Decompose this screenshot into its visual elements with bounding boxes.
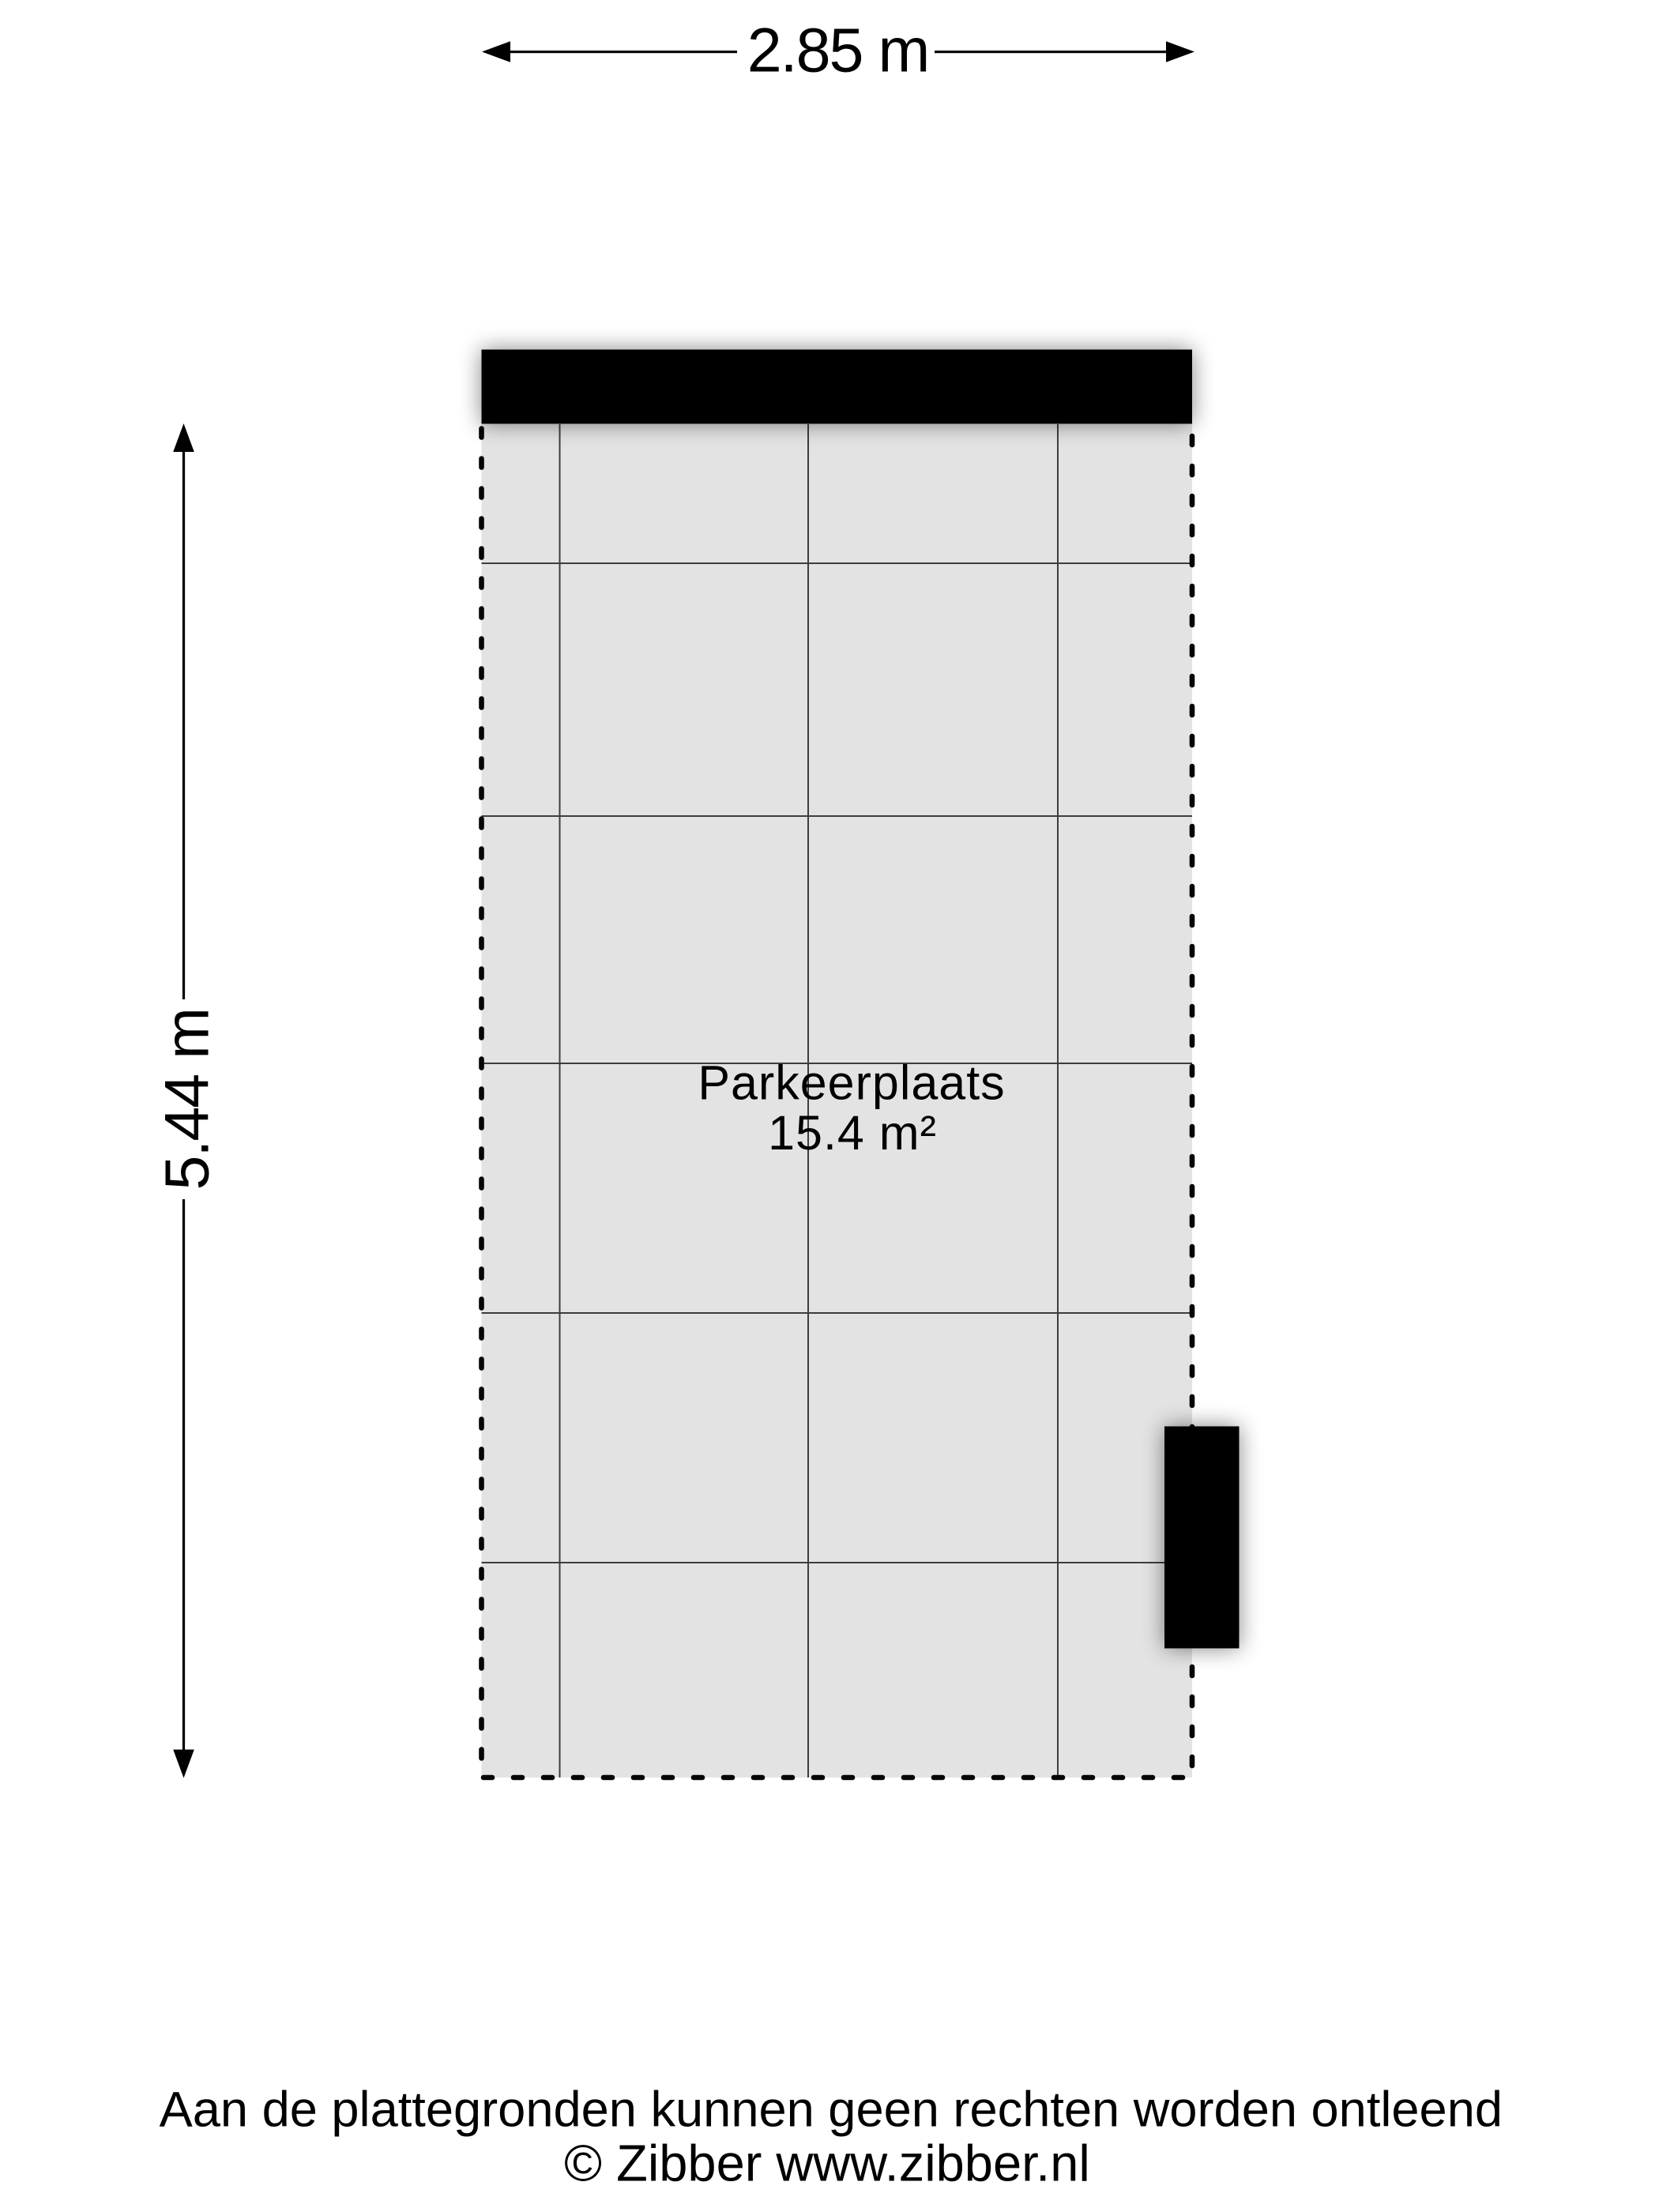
svg-text:15.4 m²: 15.4 m² — [768, 1106, 937, 1160]
svg-text:© Zibber www.zibber.nl: © Zibber www.zibber.nl — [564, 2135, 1090, 2192]
svg-text:Aan de plattegronden kunnen ge: Aan de plattegronden kunnen geen rechten… — [160, 2082, 1503, 2137]
svg-text:2.85 m: 2.85 m — [747, 15, 929, 85]
svg-text:5.44 m: 5.44 m — [152, 1009, 222, 1191]
svg-text:Parkeerplaats: Parkeerplaats — [698, 1056, 1005, 1110]
